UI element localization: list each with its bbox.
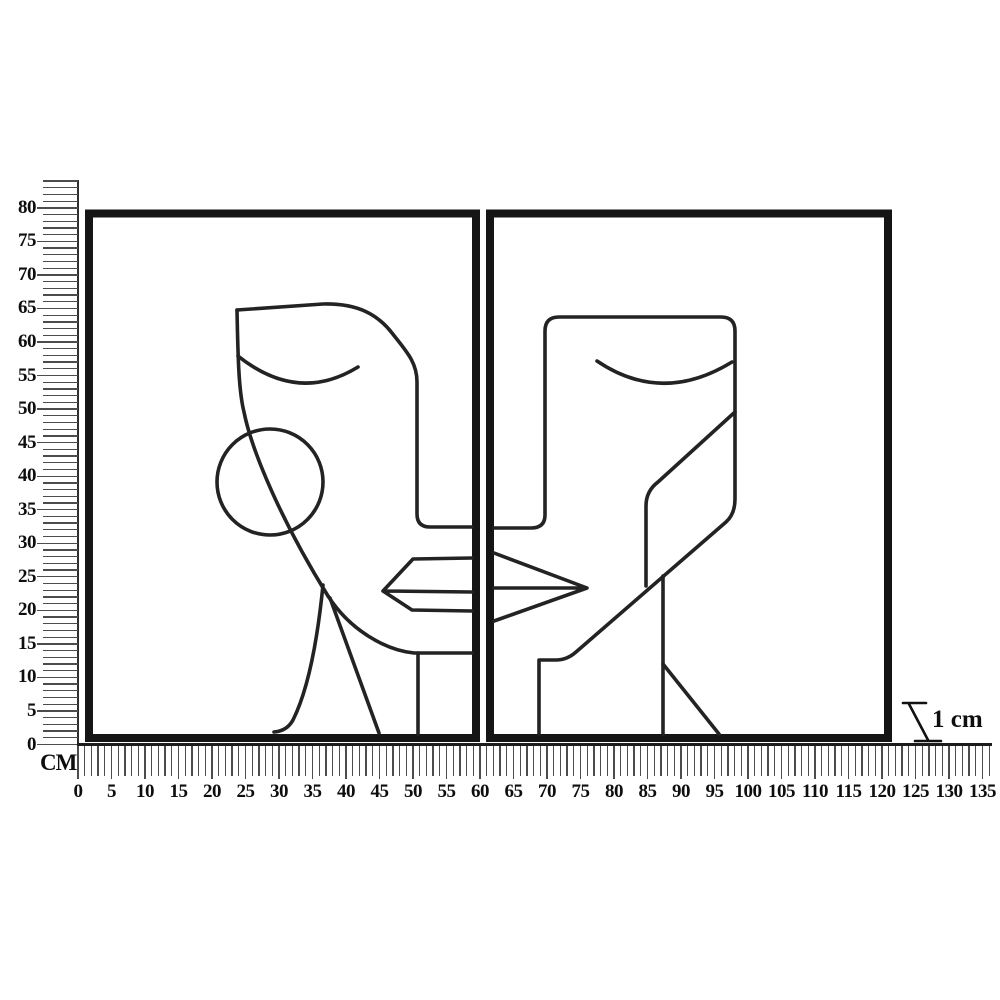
wall-art-two-panels bbox=[0, 0, 1000, 1000]
product-dimension-image: 05101520253035404550556065707580 0510152… bbox=[0, 0, 1000, 1000]
frame-depth-label: 1 cm bbox=[932, 706, 983, 734]
depth-diagonal bbox=[909, 704, 928, 740]
